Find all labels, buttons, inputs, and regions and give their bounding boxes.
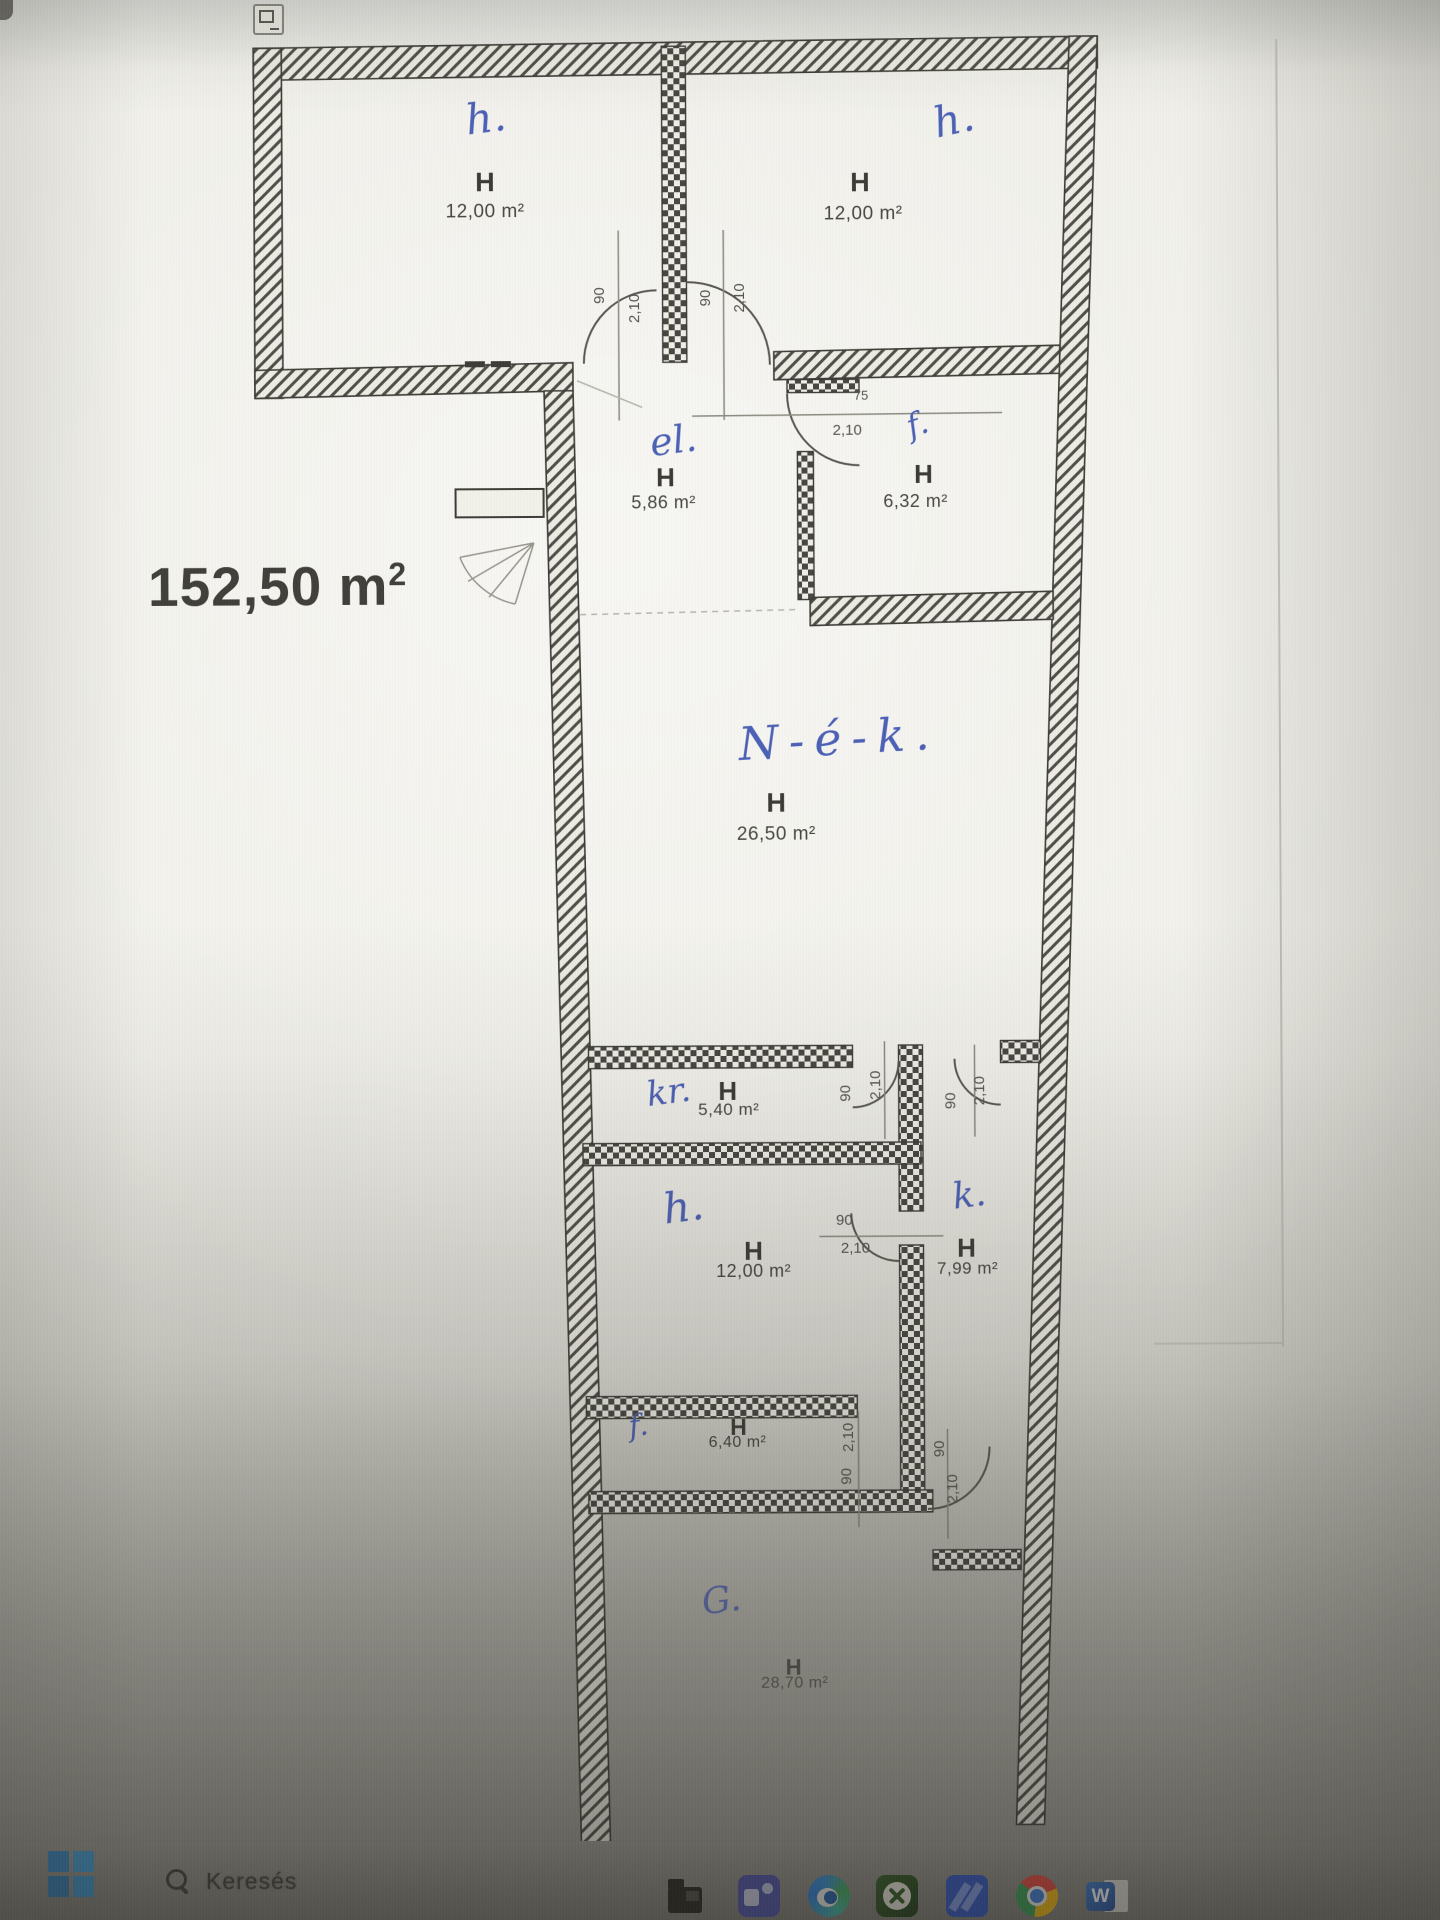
room-code-label: H bbox=[850, 167, 870, 198]
dim-label: 90 bbox=[838, 1468, 855, 1485]
blue-tiles-icon[interactable] bbox=[946, 1875, 988, 1917]
windows-start-button[interactable] bbox=[48, 1851, 94, 1897]
taskbar-search[interactable]: Keresés bbox=[166, 1858, 297, 1904]
room-area-label: 7,99 m² bbox=[937, 1259, 998, 1279]
room-hand-label: h. bbox=[929, 91, 979, 147]
room-hand-label: h. bbox=[462, 91, 508, 145]
total-area-label: 152,50 m2 bbox=[148, 554, 408, 619]
room-area-label: 12,00 m² bbox=[446, 201, 525, 223]
room-hand-label: N-é-k. bbox=[737, 706, 941, 771]
room-area-label: 5,40 m² bbox=[698, 1100, 759, 1120]
dim-label: 90 bbox=[697, 290, 714, 307]
word-icon[interactable]: W bbox=[1086, 1875, 1128, 1917]
search-icon bbox=[166, 1869, 190, 1893]
room-area-label: 5,86 m² bbox=[631, 492, 696, 513]
edge-icon[interactable] bbox=[808, 1875, 850, 1917]
room-hand-label: el. bbox=[647, 415, 699, 465]
chrome-icon[interactable] bbox=[1016, 1875, 1058, 1917]
room-hand-label: f. bbox=[627, 1407, 651, 1444]
teams-icon[interactable] bbox=[738, 1875, 780, 1917]
total-area-value: 152,50 m bbox=[148, 555, 389, 618]
dim-label: 2,10 bbox=[840, 1423, 857, 1452]
room-area-label: 28,70 m² bbox=[761, 1674, 828, 1692]
room-hand-label: G. bbox=[699, 1578, 743, 1624]
dim-label: 90 bbox=[942, 1092, 959, 1109]
dim-label: 2,10 bbox=[971, 1076, 988, 1105]
room-hand-label: h. bbox=[660, 1180, 706, 1234]
dim-label: 2,10 bbox=[944, 1474, 961, 1503]
dim-label: 75 bbox=[854, 388, 869, 403]
windows-logo-icon bbox=[48, 1851, 69, 1872]
room-hand-label: k. bbox=[950, 1173, 988, 1218]
screen-photo: 152,50 m2 h. H 12,00 m² h. H 12,00 m² el… bbox=[0, 0, 1440, 1920]
room-hand-label: kr. bbox=[644, 1070, 693, 1115]
file-explorer-icon[interactable] bbox=[668, 1875, 710, 1917]
room-area-label: 12,00 m² bbox=[716, 1261, 791, 1282]
plan-labels: 152,50 m2 h. H 12,00 m² h. H 12,00 m² el… bbox=[0, 0, 1440, 1920]
room-code-label: H bbox=[475, 167, 495, 198]
total-area-sup: 2 bbox=[388, 556, 407, 592]
word-letter: W bbox=[1086, 1882, 1115, 1911]
room-code-label: H bbox=[766, 788, 786, 819]
room-code-label: H bbox=[914, 459, 933, 490]
dim-label: 90 bbox=[837, 1085, 854, 1102]
dim-label: 2,10 bbox=[841, 1240, 870, 1257]
room-code-label: H bbox=[656, 462, 675, 493]
dim-label: 90 bbox=[931, 1440, 948, 1457]
dim-label: 2,10 bbox=[731, 283, 748, 312]
dim-label: 2,10 bbox=[833, 422, 862, 439]
room-area-label: 6,40 m² bbox=[709, 1434, 767, 1452]
room-hand-label: f. bbox=[901, 403, 933, 446]
room-area-label: 6,32 m² bbox=[883, 491, 948, 512]
room-area-label: 12,00 m² bbox=[824, 203, 903, 225]
dim-label: 90 bbox=[836, 1212, 853, 1229]
room-area-label: 26,50 m² bbox=[737, 823, 816, 845]
search-label: Keresés bbox=[206, 1868, 297, 1895]
xbox-icon[interactable] bbox=[876, 1875, 918, 1917]
dim-label: 2,10 bbox=[626, 294, 643, 323]
taskbar: Keresés W bbox=[0, 1841, 1440, 1920]
dim-label: 2,10 bbox=[867, 1071, 884, 1100]
dim-label: 90 bbox=[591, 287, 608, 304]
